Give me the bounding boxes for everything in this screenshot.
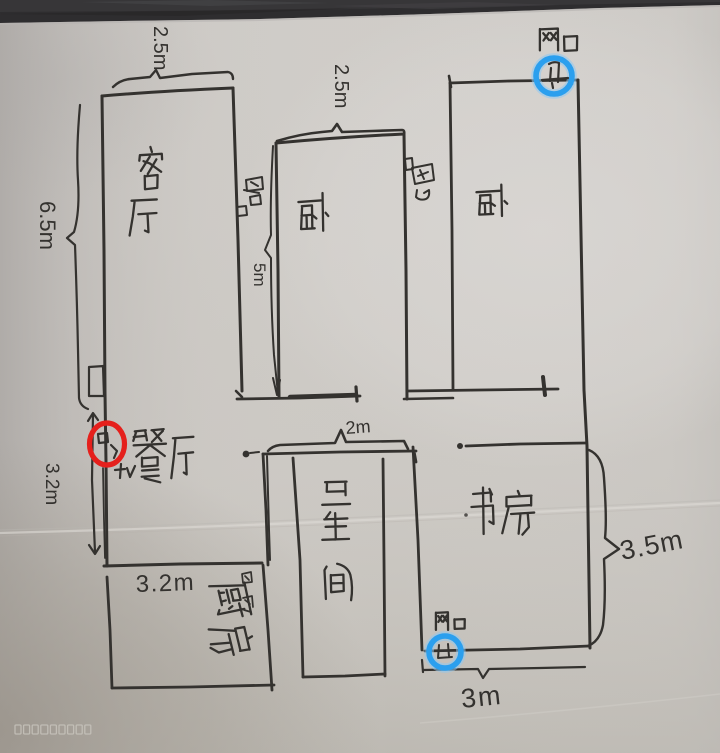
svg-text:2.5m: 2.5m — [149, 26, 171, 70]
svg-text:3.2m: 3.2m — [135, 569, 195, 598]
svg-text:3m: 3m — [459, 680, 503, 714]
svg-text:5m: 5m — [250, 263, 269, 287]
svg-text:2.5m: 2.5m — [330, 64, 352, 108]
svg-text:6.5m: 6.5m — [35, 201, 60, 250]
svg-text:2m: 2m — [345, 416, 371, 438]
svg-text:3.2m: 3.2m — [41, 463, 62, 505]
